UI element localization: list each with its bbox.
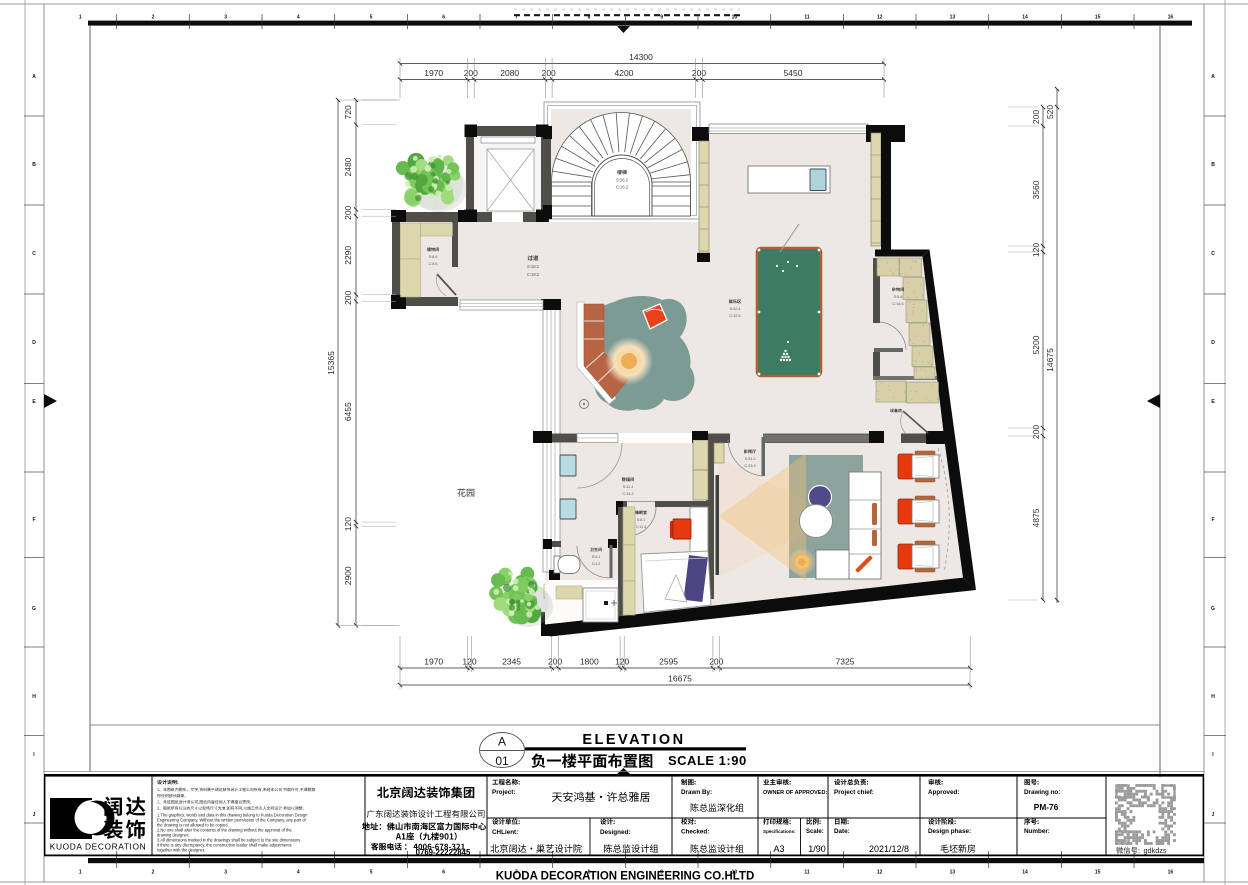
- svg-text:3: 3: [224, 15, 227, 21]
- svg-text:16: 16: [1168, 870, 1174, 876]
- svg-text:S:4.1: S:4.1: [592, 555, 600, 559]
- svg-text:C:32.4: C:32.4: [729, 314, 740, 318]
- svg-text:12: 12: [877, 870, 883, 876]
- svg-text:12: 12: [877, 15, 883, 21]
- svg-text:S:16.2: S:16.2: [616, 178, 629, 183]
- svg-text:ELEVATION: ELEVATION: [582, 732, 685, 748]
- svg-text:200: 200: [464, 68, 478, 78]
- svg-text:S:31.2: S:31.2: [745, 457, 756, 461]
- svg-text:120: 120: [1031, 243, 1041, 257]
- svg-text:7: 7: [515, 15, 518, 21]
- svg-text:4200: 4200: [615, 68, 634, 78]
- svg-text:120: 120: [462, 657, 476, 667]
- svg-text:Specifications:: Specifications:: [763, 829, 796, 834]
- svg-text:2: 2: [152, 15, 155, 21]
- svg-text:1: 1: [79, 15, 82, 21]
- svg-text:16675: 16675: [668, 674, 692, 684]
- svg-text:3560: 3560: [1031, 180, 1041, 199]
- svg-text:S:11.4: S:11.4: [623, 485, 634, 489]
- svg-text:6: 6: [442, 15, 445, 21]
- svg-text:A: A: [498, 735, 506, 749]
- svg-text:15: 15: [1095, 870, 1101, 876]
- svg-text:120: 120: [615, 657, 629, 667]
- svg-text:Design phase:: Design phase:: [928, 828, 971, 835]
- svg-text:J: J: [33, 812, 36, 818]
- svg-text:G: G: [1211, 606, 1215, 612]
- svg-text:2080: 2080: [500, 68, 519, 78]
- svg-text:C:18.2: C:18.2: [527, 272, 540, 277]
- svg-text:D: D: [1211, 340, 1215, 346]
- svg-text:2345: 2345: [502, 657, 521, 667]
- svg-text:2: 2: [152, 870, 155, 876]
- svg-text:A: A: [32, 74, 36, 80]
- svg-text:14: 14: [1022, 15, 1028, 21]
- svg-text:720: 720: [343, 105, 353, 119]
- svg-text:A3: A3: [773, 844, 784, 854]
- svg-text:C:11.4: C:11.4: [636, 525, 646, 529]
- svg-text:16: 16: [1168, 15, 1174, 21]
- svg-text:PM-76: PM-76: [1034, 802, 1059, 812]
- svg-text:200: 200: [692, 68, 706, 78]
- svg-text:8: 8: [588, 15, 591, 21]
- svg-text:CHLient:: CHLient:: [492, 829, 518, 836]
- svg-text:S:5.6: S:5.6: [894, 295, 903, 299]
- svg-text:15365: 15365: [326, 351, 336, 375]
- svg-text:together with the designer.: together with the designer.: [157, 848, 205, 853]
- svg-text:200: 200: [1031, 110, 1041, 124]
- svg-text:200: 200: [542, 68, 556, 78]
- svg-text:Designed:: Designed:: [600, 829, 630, 836]
- svg-text:520: 520: [1045, 105, 1055, 119]
- svg-text:2480: 2480: [343, 157, 353, 176]
- svg-text:F: F: [1211, 517, 1214, 523]
- svg-text:S:8.1: S:8.1: [637, 518, 645, 522]
- svg-text:OWNER OF APPROVED:: OWNER OF APPROVED:: [763, 790, 827, 796]
- svg-text:C:8.6: C:8.6: [428, 262, 437, 266]
- svg-text:SCALE 1:90: SCALE 1:90: [668, 753, 747, 768]
- svg-text:Date:: Date:: [834, 828, 850, 835]
- svg-text:0769-22222845: 0769-22222845: [416, 848, 471, 857]
- svg-text:14675: 14675: [1045, 348, 1055, 372]
- svg-text:C:23.4: C:23.4: [744, 464, 755, 468]
- svg-text:C: C: [1211, 251, 1215, 257]
- svg-text:13: 13: [950, 15, 956, 21]
- svg-text:10: 10: [732, 15, 738, 21]
- svg-text:Scale:: Scale:: [806, 829, 824, 835]
- svg-text:B: B: [1211, 162, 1215, 168]
- svg-text:A: A: [1211, 74, 1215, 80]
- svg-text:2021/12/8: 2021/12/8: [869, 844, 909, 854]
- svg-text:C:14.2: C:14.2: [622, 492, 633, 496]
- svg-text:4875: 4875: [1031, 508, 1041, 527]
- svg-text:01: 01: [495, 754, 509, 768]
- svg-text:Project chief:: Project chief:: [834, 789, 874, 796]
- svg-text:C:4.2: C:4.2: [592, 562, 601, 566]
- svg-text:6455: 6455: [343, 402, 353, 421]
- svg-text:2900: 2900: [343, 566, 353, 585]
- svg-text:6: 6: [442, 870, 445, 876]
- svg-text:KUODA DECORATION ENGINEERING C: KUODA DECORATION ENGINEERING CO.HLTD: [496, 871, 755, 883]
- svg-text:7325: 7325: [836, 657, 855, 667]
- svg-text:5: 5: [370, 870, 373, 876]
- svg-text:4: 4: [297, 870, 300, 876]
- svg-text:Project:: Project:: [492, 789, 515, 796]
- svg-text:5: 5: [370, 15, 373, 21]
- svg-text:F: F: [32, 517, 35, 523]
- svg-text:200: 200: [1031, 425, 1041, 439]
- svg-text:200: 200: [343, 205, 353, 219]
- svg-text:14: 14: [1022, 870, 1028, 876]
- svg-text:2290: 2290: [343, 246, 353, 265]
- svg-text:S:18.2: S:18.2: [527, 264, 540, 269]
- svg-text:C: C: [32, 251, 36, 257]
- svg-text:11: 11: [804, 870, 810, 876]
- svg-text:KUODA DECORATION: KUODA DECORATION: [50, 842, 146, 852]
- svg-text:3: 3: [224, 870, 227, 876]
- svg-text:5200: 5200: [1031, 335, 1041, 354]
- svg-text:200: 200: [709, 657, 723, 667]
- svg-text:5450: 5450: [784, 68, 803, 78]
- svg-text:Checked:: Checked:: [681, 829, 709, 836]
- svg-text:B: B: [32, 162, 36, 168]
- svg-text:C:16.2: C:16.2: [616, 185, 629, 190]
- svg-text:1970: 1970: [424, 68, 443, 78]
- svg-text:120: 120: [343, 517, 353, 531]
- svg-text:S:42.4: S:42.4: [730, 307, 741, 311]
- svg-text:15: 15: [1095, 15, 1101, 21]
- svg-text:Number:: Number:: [1024, 828, 1050, 835]
- svg-text:D: D: [32, 340, 36, 346]
- svg-text:Drawing no:: Drawing no:: [1024, 789, 1060, 796]
- svg-text:G: G: [32, 606, 36, 612]
- svg-text:11: 11: [804, 15, 810, 21]
- svg-text:9: 9: [660, 15, 663, 21]
- svg-text:C:16.6: C:16.6: [892, 302, 903, 306]
- svg-text:gdkdzs: gdkdzs: [1143, 846, 1166, 855]
- svg-text:2595: 2595: [659, 657, 678, 667]
- svg-text:13: 13: [950, 870, 956, 876]
- svg-text:S:8.6: S:8.6: [429, 255, 438, 259]
- svg-text:H: H: [1211, 694, 1215, 700]
- svg-text:14300: 14300: [629, 52, 653, 62]
- svg-text:H: H: [32, 694, 36, 700]
- svg-text:4: 4: [297, 15, 300, 21]
- svg-text:1: 1: [79, 870, 82, 876]
- svg-text:J: J: [1212, 812, 1215, 818]
- svg-text:200: 200: [548, 657, 562, 667]
- svg-text:1/90: 1/90: [808, 844, 826, 854]
- svg-text:1800: 1800: [580, 657, 599, 667]
- svg-text:Drawn By:: Drawn By:: [681, 789, 712, 796]
- svg-text:200: 200: [343, 291, 353, 305]
- svg-text:1970: 1970: [424, 657, 443, 667]
- svg-text:Approved:: Approved:: [928, 789, 960, 796]
